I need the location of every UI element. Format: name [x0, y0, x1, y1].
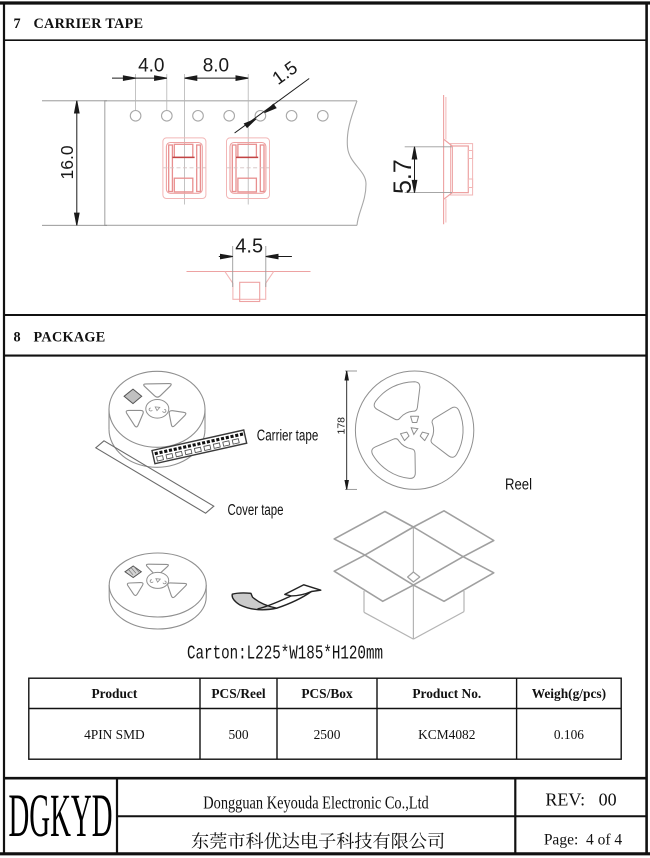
svg-text:500: 500 — [228, 727, 248, 742]
svg-text:PACKAGE: PACKAGE — [34, 329, 106, 345]
svg-text:PCS/Box: PCS/Box — [301, 686, 353, 701]
svg-text:4.5: 4.5 — [235, 235, 263, 257]
svg-text:Carrier tape: Carrier tape — [257, 428, 319, 445]
svg-text:8: 8 — [14, 329, 21, 345]
svg-text:0.106: 0.106 — [554, 727, 584, 742]
svg-text:Cover tape: Cover tape — [228, 502, 284, 519]
svg-text:4.0: 4.0 — [138, 55, 164, 76]
svg-text:Carton:L225*W185*H120mm: Carton:L225*W185*H120mm — [187, 643, 383, 665]
svg-text:CARRIER TAPE: CARRIER TAPE — [34, 16, 144, 32]
svg-text:Page: 4 of 4: Page: 4 of 4 — [544, 832, 623, 849]
svg-text:7: 7 — [14, 16, 21, 32]
svg-text:4PIN SMD: 4PIN SMD — [84, 727, 145, 742]
svg-text:Reel: Reel — [505, 477, 532, 494]
svg-text:8.0: 8.0 — [203, 55, 229, 76]
svg-text:Weigh(g/pcs): Weigh(g/pcs) — [532, 686, 606, 701]
svg-text:PCS/Reel: PCS/Reel — [211, 686, 266, 701]
svg-text:5.7: 5.7 — [389, 159, 417, 194]
svg-text:16.0: 16.0 — [57, 145, 77, 179]
svg-text:Dongguan Keyouda Electronic Co: Dongguan Keyouda Electronic Co.,Ltd — [203, 793, 429, 813]
svg-text:Product No.: Product No. — [412, 686, 481, 701]
svg-text:KCM4082: KCM4082 — [418, 727, 475, 742]
svg-text:Product: Product — [91, 686, 137, 701]
svg-text:DGKYD: DGKYD — [9, 783, 113, 850]
svg-text:REV: 00: REV: 00 — [545, 790, 616, 810]
svg-text:2500: 2500 — [314, 727, 341, 742]
svg-text:178: 178 — [336, 417, 348, 435]
